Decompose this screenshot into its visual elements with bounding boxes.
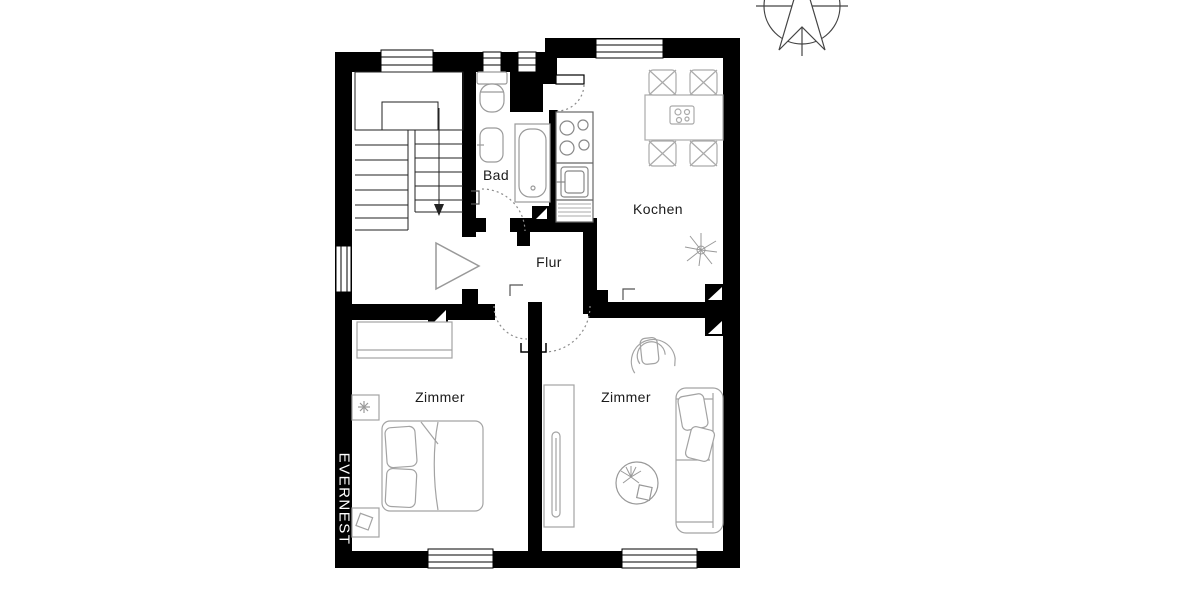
window-bad-2 [518, 52, 536, 72]
kochen-door-arc [557, 85, 584, 111]
nightstand-icon [352, 508, 379, 537]
wardrobe-icon [357, 322, 452, 358]
room-label-zimmer-left: Zimmer [415, 389, 465, 405]
door-stop-bracket [623, 289, 635, 300]
dining-table-icon [645, 95, 723, 140]
door-stop-bracket [510, 285, 523, 296]
chair-icon [690, 141, 717, 166]
kitchen-sink-icon [556, 167, 588, 197]
room-label-kochen: Kochen [633, 201, 683, 217]
wall-flur-kochen [583, 218, 597, 314]
wardrobe-icon [544, 385, 574, 527]
chair-icon [649, 141, 676, 166]
wall-entry-stub [462, 289, 478, 305]
nightstand-icon [352, 395, 379, 420]
sofa-icon [676, 388, 723, 533]
window-zimmer-right [622, 549, 697, 568]
plant-icon [685, 233, 717, 266]
brand-watermark: EVERNEST [336, 453, 353, 546]
window-bad-1 [483, 52, 501, 72]
room-label-bad: Bad [483, 167, 509, 183]
rug-icon [616, 462, 658, 504]
wall-bad-bottom-left [462, 218, 486, 232]
staircase-icon [355, 72, 463, 230]
bathtub-icon [515, 124, 550, 202]
window-zimmer-left [428, 549, 493, 568]
window-kochen [596, 39, 663, 58]
plant-icon [621, 466, 641, 483]
window-left-wall [336, 246, 351, 292]
double-bed-icon [382, 421, 483, 511]
zimmer-right-furniture [544, 330, 723, 533]
floorplan-drawing [0, 0, 1200, 600]
entrance-arrow-icon [436, 243, 479, 289]
zimmer-left-furniture [352, 322, 483, 537]
wall-flur-left [352, 304, 495, 320]
wall-center [528, 302, 542, 560]
floorplan-canvas: Bad Kochen Flur Zimmer Zimmer EVERNEST [0, 0, 1200, 600]
armchair-icon [624, 330, 678, 380]
room-label-flur: Flur [536, 254, 562, 270]
toilet-icon [477, 72, 507, 112]
window-stairwell [381, 50, 433, 72]
north-compass-icon [756, 0, 848, 56]
kochen-door-leaf [556, 75, 584, 84]
room-label-zimmer-right: Zimmer [601, 389, 651, 405]
chair-icon [690, 70, 717, 95]
washbasin-icon [477, 128, 503, 162]
wall-flur-right [588, 302, 740, 318]
kochen-door [556, 75, 584, 111]
stair-down-arrow-icon [434, 204, 444, 216]
kochen-fixtures [556, 70, 723, 266]
wall-kitchen-door-top [543, 58, 557, 84]
wall-stub-bad [517, 232, 530, 246]
wall-stair-bad [462, 72, 476, 237]
zimmer-left-door-arc [494, 306, 527, 339]
chair-icon [649, 70, 676, 95]
